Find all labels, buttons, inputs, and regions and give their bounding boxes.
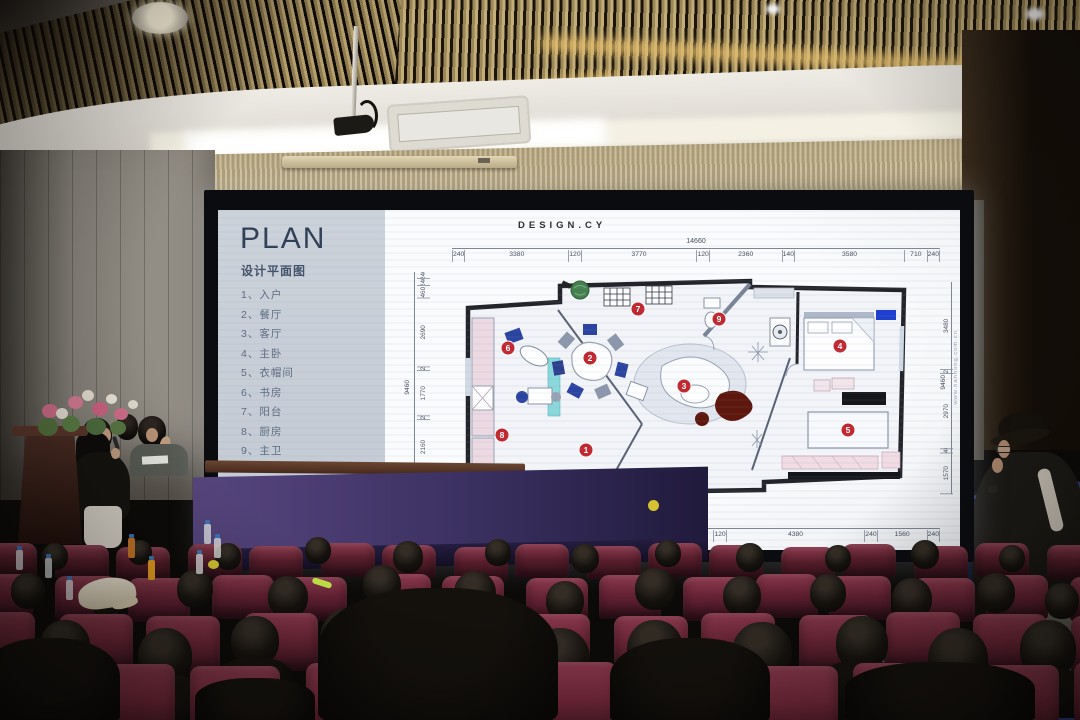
- audience-head: [1045, 583, 1079, 619]
- legend-item: 8、厨房: [241, 423, 371, 443]
- legend-item: 1、入户: [241, 286, 371, 306]
- water-bottle: [204, 524, 211, 544]
- svg-text:2: 2: [588, 353, 593, 363]
- legend-item: 2、餐厅: [241, 306, 371, 326]
- audience-head: [635, 568, 675, 610]
- flower-bouquet: [28, 388, 162, 446]
- ceiling-light-dot: [766, 4, 780, 14]
- svg-text:8: 8: [500, 430, 505, 440]
- slide-title: PLAN: [240, 222, 326, 256]
- marker-dining: 2: [583, 351, 597, 365]
- wrist-watch: [988, 486, 998, 493]
- ceiling-light-dot: [1026, 8, 1044, 20]
- audience-head: [11, 573, 45, 609]
- seat-back: [1047, 545, 1080, 579]
- yellow-ball: [648, 500, 659, 511]
- slide-subtitle: 设计平面图: [241, 262, 306, 279]
- marker-bathroom: 9: [712, 312, 726, 326]
- dim-total-right: 9460: [940, 375, 947, 390]
- audience-head: [810, 574, 846, 612]
- water-bottle: [66, 580, 73, 600]
- audience-head: [736, 543, 764, 572]
- water-bottle: [45, 558, 52, 578]
- water-bottle: [148, 560, 155, 580]
- room-legend: 1、入户 2、餐厅 3、客厅 4、主卧 5、衣帽间 6、书房 7、阳台 8、厨房…: [241, 286, 371, 462]
- audience-head: [485, 539, 511, 566]
- paper-on-desk: [142, 455, 168, 464]
- ac-vent: [386, 95, 531, 153]
- foreground-silhouette: [195, 678, 315, 720]
- svg-text:1: 1: [584, 445, 589, 455]
- beam-label-plate: [478, 158, 490, 163]
- audience-head: [571, 544, 599, 573]
- designer-brand: DESIGN.CY: [518, 220, 606, 231]
- dim-total-top: 14660: [452, 238, 940, 245]
- svg-text:9: 9: [717, 314, 722, 324]
- foreground-silhouette: [610, 638, 770, 720]
- svg-text:6: 6: [506, 343, 511, 353]
- legend-item: 7、阳台: [241, 403, 371, 423]
- water-bottle: [214, 538, 221, 558]
- legend-item: 6、书房: [241, 384, 371, 404]
- marker-kitchen: 8: [495, 428, 509, 442]
- seat-back: [515, 544, 569, 578]
- foreground-silhouette: [0, 638, 120, 720]
- lecture-hall-photo: PLAN 设计平面图 1、入户 2、餐厅 3、客厅 4、主卧 5、衣帽间 6、书…: [0, 0, 1080, 720]
- speaker-woman-hand: [111, 448, 120, 459]
- instructor-glasses: [996, 446, 1011, 453]
- water-bottle: [196, 554, 203, 574]
- audience-head: [268, 576, 308, 618]
- audience-head: [177, 570, 213, 608]
- foreground-silhouette: [845, 662, 1035, 720]
- audience-head: [723, 576, 761, 616]
- svg-text:4: 4: [838, 341, 843, 351]
- marker-study: 6: [501, 341, 515, 355]
- audience-head: [305, 537, 331, 564]
- dim-total-left: 9460: [404, 380, 411, 395]
- yellow-object: [208, 560, 219, 569]
- water-bottle: [128, 538, 135, 558]
- svg-text:3: 3: [682, 381, 687, 391]
- audience-head: [911, 540, 939, 569]
- seat-back: [756, 574, 818, 618]
- audience-head: [393, 541, 423, 573]
- podium: [18, 432, 82, 544]
- dim-line: [951, 282, 952, 494]
- svg-text:7: 7: [636, 304, 641, 314]
- website-watermark: www.nanhong.com.cn: [953, 330, 959, 405]
- audience-head: [825, 545, 851, 572]
- legend-item: 4、主卧: [241, 345, 371, 365]
- audience-head: [999, 545, 1025, 572]
- recessed-light: [132, 2, 188, 34]
- foreground-silhouette: [318, 588, 558, 720]
- legend-item: 5、衣帽间: [241, 364, 371, 384]
- instructor-hand: [992, 458, 1003, 473]
- marker-cloakroom: 5: [841, 423, 855, 437]
- marker-entry: 1: [579, 443, 593, 457]
- legend-item: 9、主卫: [241, 442, 371, 462]
- water-bottle: [16, 550, 23, 570]
- svg-text:5: 5: [846, 425, 851, 435]
- audience-head: [655, 540, 681, 567]
- speaker-woman-skirt: [84, 506, 122, 548]
- seat-back: [1074, 662, 1080, 720]
- marker-balcony: 7: [631, 302, 645, 316]
- legend-item: 3、客厅: [241, 325, 371, 345]
- audience-head: [977, 573, 1015, 613]
- dim-row-top: 2403380120377012023601403580710240: [452, 250, 940, 262]
- marker-living: 3: [677, 379, 691, 393]
- marker-bedroom: 4: [833, 339, 847, 353]
